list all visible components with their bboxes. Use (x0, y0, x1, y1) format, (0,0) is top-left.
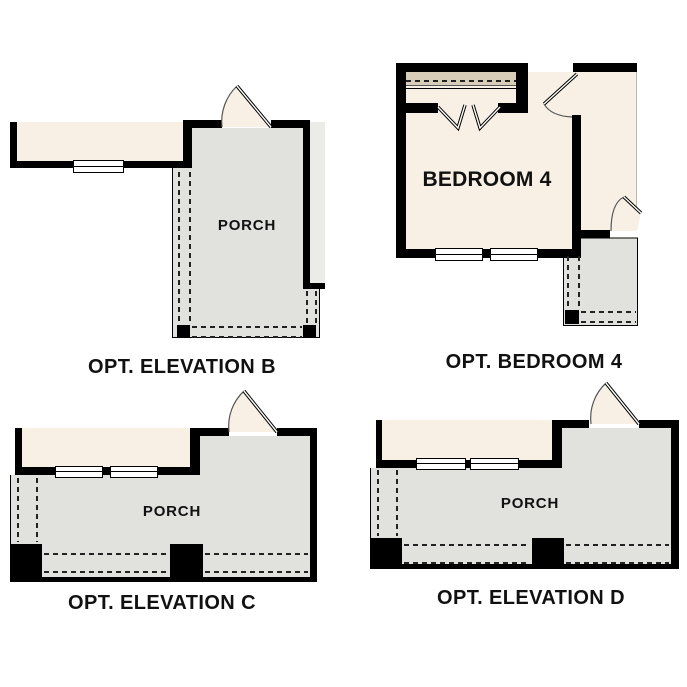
wall (303, 120, 310, 285)
wall (396, 249, 581, 258)
porch-post (370, 538, 402, 569)
porch-post (10, 544, 42, 577)
window-symbol (110, 466, 158, 478)
porch-post (565, 310, 579, 324)
panel-caption: OPT. ELEVATION D (381, 587, 681, 610)
wall (573, 63, 637, 72)
window-symbol (435, 248, 483, 261)
hall-interior-fill (581, 72, 637, 231)
porch-edge-dashed-line (567, 256, 569, 308)
porch-label: PORCH (197, 217, 297, 234)
porch-edge-dashed-line (205, 553, 308, 555)
room-interior-fill (382, 420, 552, 460)
porch-edge-dashed-line (578, 256, 580, 308)
porch-edge-dashed-line (581, 311, 636, 313)
porch-edge-dashed-line (36, 478, 38, 542)
window-symbol (73, 160, 124, 173)
wall (552, 420, 589, 428)
wall (498, 103, 528, 113)
bedroom-interior-fill (406, 72, 572, 249)
wall (370, 564, 679, 569)
porch-slab (10, 475, 310, 578)
wall (190, 428, 229, 436)
porch-edge-dashed-line (396, 470, 398, 536)
window-symbol (55, 466, 103, 478)
closet-rod-line (406, 88, 516, 89)
porch-slab (370, 468, 679, 568)
door-swing-icon (222, 86, 271, 127)
wall (15, 467, 196, 475)
window-symbol (416, 458, 466, 470)
porch-label: PORCH (122, 503, 222, 520)
bedroom-label: BEDROOM 4 (387, 168, 587, 192)
wall (376, 460, 558, 468)
window-symbol (490, 248, 538, 261)
porch-edge-dashed-line (581, 321, 636, 323)
door-opening-fill (572, 72, 581, 115)
porch-post (532, 538, 564, 569)
porch-edge-dashed-line (192, 336, 302, 338)
porch-post (303, 325, 316, 338)
porch-edge-dashed-line (44, 553, 168, 555)
wall (671, 420, 679, 568)
closet-shelf (406, 72, 516, 86)
wall (572, 230, 610, 238)
porch-label: PORCH (480, 495, 580, 512)
porch-edge-dashed-line (315, 291, 317, 324)
porch-edge-dashed-line (306, 291, 308, 324)
porch-edge-dashed-line (192, 326, 302, 328)
room-interior-fill (22, 428, 190, 467)
door-swing-icon (591, 383, 639, 424)
porch-edge-dashed-line (566, 562, 669, 564)
room-interior-fill (17, 122, 183, 161)
floor-plan-sheet: PORCH OPT. ELEVATION B BEDROOM 4 OPT. BE… (0, 0, 687, 687)
porch-edge-dashed-line (189, 172, 191, 324)
side-patio-fill (310, 122, 325, 283)
wall (396, 63, 528, 72)
wall (396, 103, 438, 113)
door-swing-icon (229, 391, 277, 432)
porch-edge-dashed-line (404, 562, 530, 564)
wall (10, 577, 317, 582)
wall (396, 63, 406, 258)
porch-slab (172, 168, 320, 338)
wall (310, 428, 317, 582)
porch-edge-dashed-line (178, 172, 180, 324)
porch-edge-dashed-line (404, 544, 530, 546)
porch-post (177, 325, 190, 338)
porch-edge-dashed-line (566, 544, 669, 546)
panel-caption: OPT. BEDROOM 4 (384, 351, 684, 374)
panel-caption: OPT. ELEVATION C (12, 592, 312, 615)
porch-edge-dashed-line (377, 470, 379, 536)
porch-edge-dashed-line (17, 478, 19, 542)
wall (183, 120, 222, 128)
wall (303, 283, 325, 289)
porch-post (170, 544, 203, 577)
porch-edge-dashed-line (205, 571, 308, 573)
window-symbol (470, 458, 519, 470)
closet-shelf-dashed-line (406, 80, 516, 82)
porch-floor-fill (192, 128, 303, 168)
panel-caption: OPT. ELEVATION B (32, 356, 332, 379)
porch-floor-fill (196, 436, 310, 475)
porch-edge-dashed-line (44, 571, 168, 573)
